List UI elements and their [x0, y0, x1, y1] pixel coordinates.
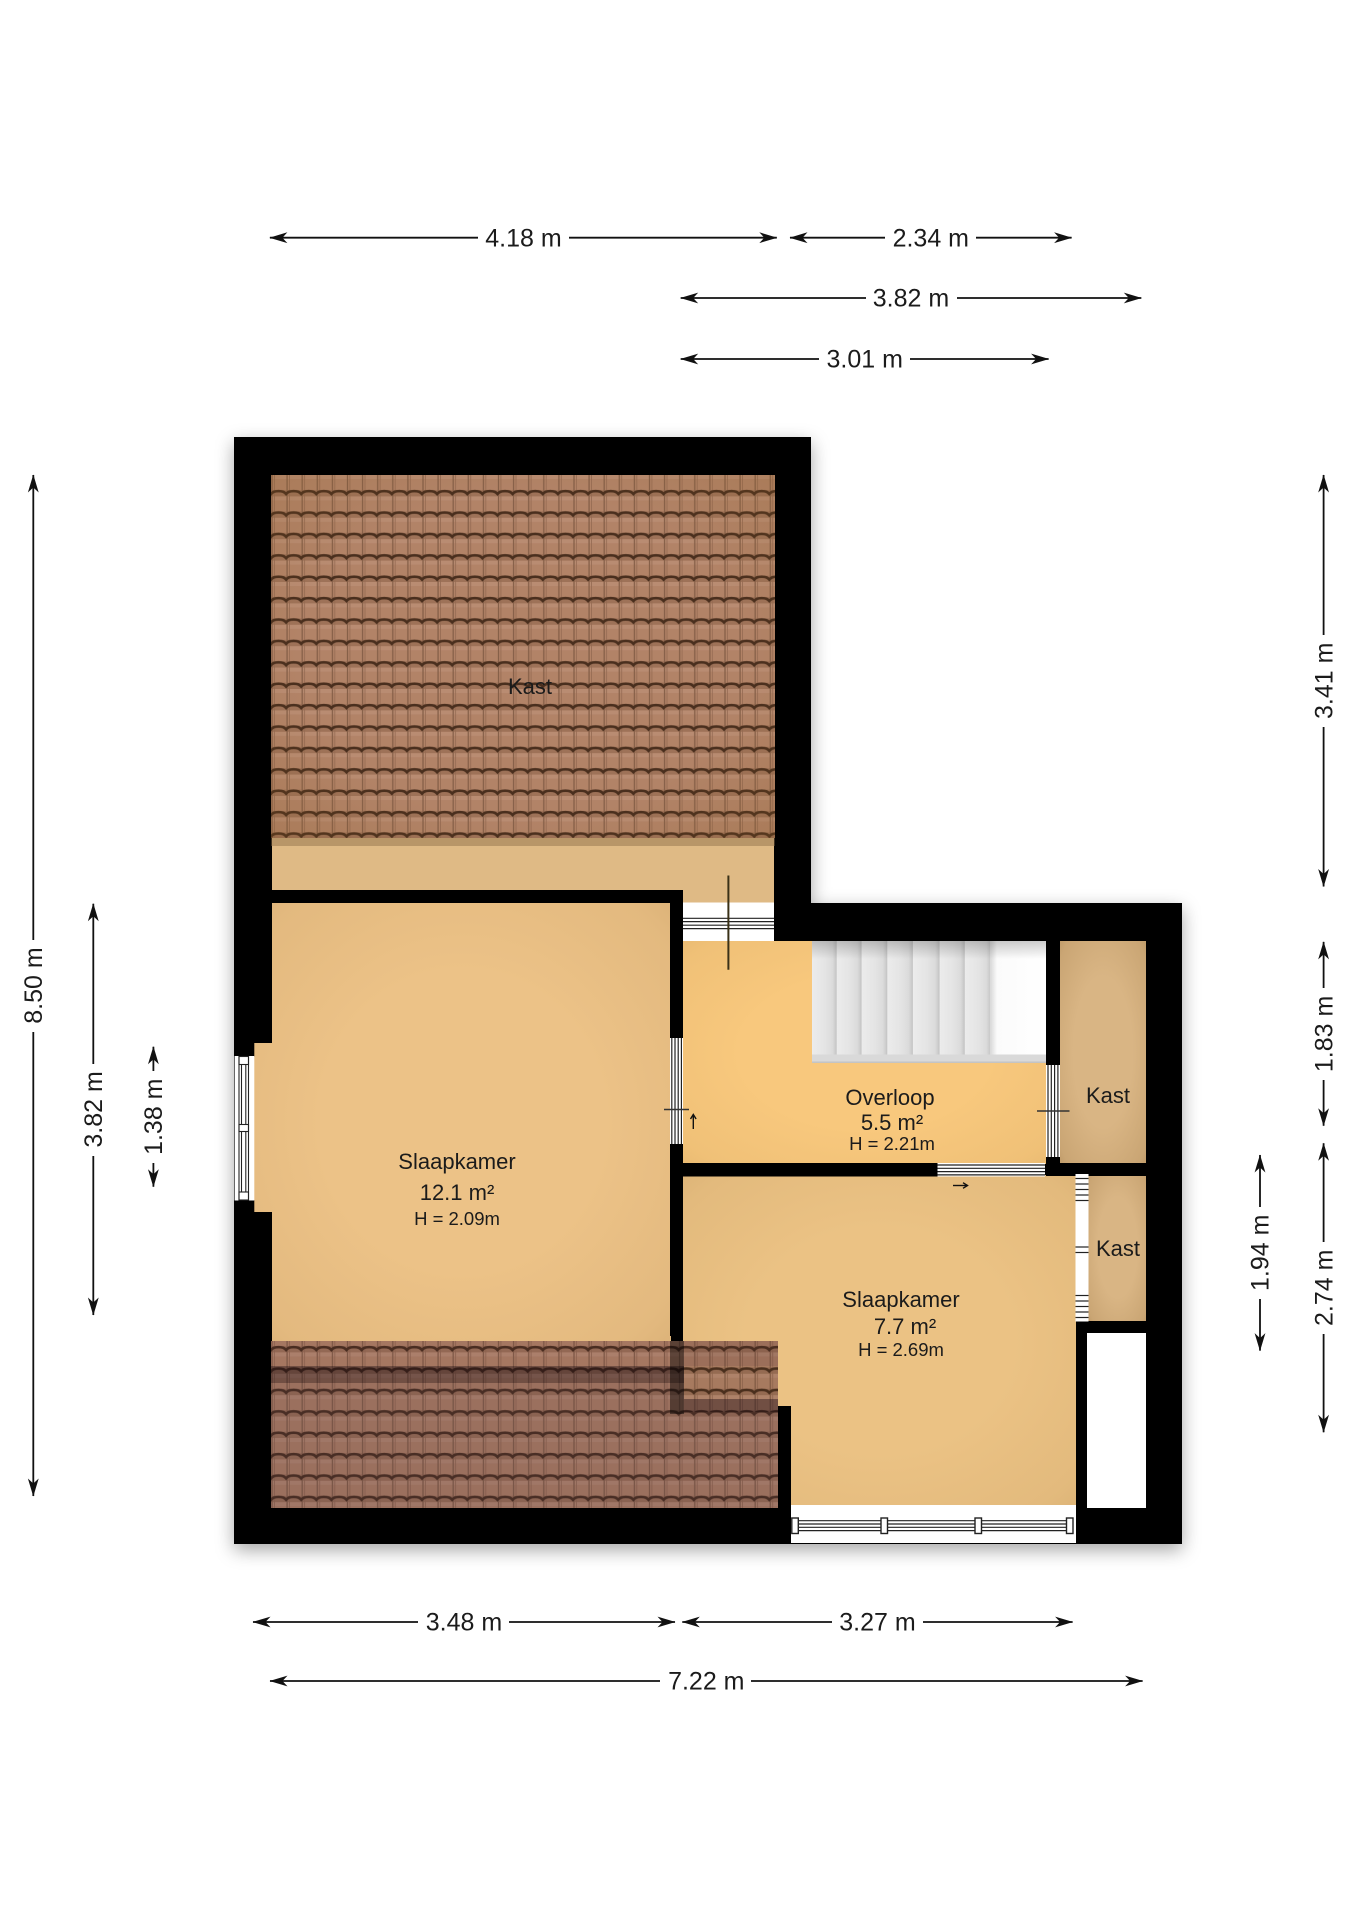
- svg-text:5.5 m²: 5.5 m²: [861, 1110, 923, 1135]
- svg-text:Slaapkamer: Slaapkamer: [842, 1287, 959, 1312]
- svg-text:3.82 m: 3.82 m: [873, 285, 949, 313]
- svg-text:1.83 m: 1.83 m: [1310, 996, 1338, 1072]
- svg-text:12.1 m²: 12.1 m²: [420, 1180, 495, 1205]
- svg-text:H = 2.69m: H = 2.69m: [858, 1339, 944, 1360]
- svg-text:3.27 m: 3.27 m: [839, 1609, 915, 1637]
- svg-text:3.41 m: 3.41 m: [1310, 643, 1338, 719]
- svg-text:1.38 m: 1.38 m: [140, 1078, 168, 1154]
- svg-text:2.74 m: 2.74 m: [1310, 1250, 1338, 1326]
- svg-text:3.48 m: 3.48 m: [426, 1609, 502, 1637]
- svg-text:Overloop: Overloop: [845, 1085, 934, 1110]
- svg-text:Kast: Kast: [508, 674, 552, 699]
- svg-text:Kast: Kast: [1096, 1236, 1140, 1261]
- svg-text:2.34 m: 2.34 m: [893, 225, 969, 253]
- svg-text:4.18 m: 4.18 m: [485, 225, 561, 253]
- svg-text:3.01 m: 3.01 m: [826, 346, 902, 374]
- svg-text:Slaapkamer: Slaapkamer: [398, 1149, 515, 1174]
- svg-text:7.7 m²: 7.7 m²: [874, 1314, 936, 1339]
- svg-text:1.94 m: 1.94 m: [1247, 1215, 1275, 1291]
- svg-text:3.82 m: 3.82 m: [80, 1071, 108, 1147]
- svg-text:7.22 m: 7.22 m: [668, 1668, 744, 1696]
- svg-text:H = 2.09m: H = 2.09m: [414, 1208, 500, 1229]
- svg-text:8.50 m: 8.50 m: [20, 947, 48, 1023]
- svg-text:H = 2.21m: H = 2.21m: [849, 1133, 935, 1154]
- svg-text:Kast: Kast: [1086, 1083, 1130, 1108]
